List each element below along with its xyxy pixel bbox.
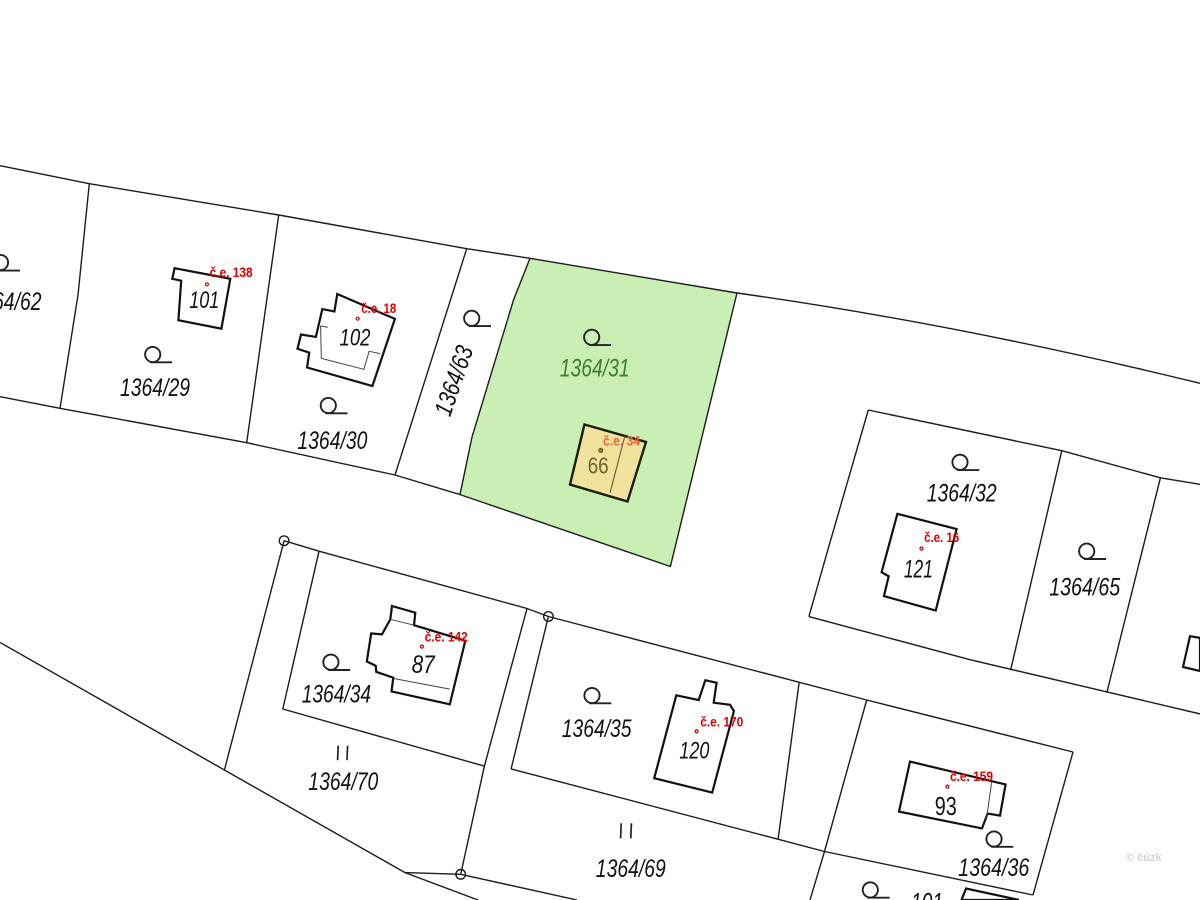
svg-text:č.e. 138: č.e. 138 (210, 265, 253, 280)
svg-text:č.e. 34: č.e. 34 (603, 434, 640, 449)
svg-text:1364/32: 1364/32 (927, 480, 997, 508)
svg-text:87: 87 (412, 651, 436, 679)
svg-text:1364/34: 1364/34 (302, 681, 371, 709)
svg-text:© čúzk: © čúzk (1126, 852, 1162, 864)
svg-text:č.e. 159: č.e. 159 (950, 769, 993, 784)
svg-text:č.e. 18: č.e. 18 (361, 301, 396, 316)
svg-text:1364/62: 1364/62 (0, 288, 42, 316)
svg-text:1364/65: 1364/65 (1049, 574, 1120, 602)
svg-text:101: 101 (189, 287, 219, 314)
svg-text:č.e. 170: č.e. 170 (700, 715, 743, 730)
svg-text:1364/70: 1364/70 (308, 768, 378, 796)
svg-text:1364/30: 1364/30 (297, 427, 367, 455)
svg-text:č.e. 16: č.e. 16 (924, 530, 959, 545)
svg-text:1364/35: 1364/35 (562, 715, 632, 743)
svg-text:1364/69: 1364/69 (596, 855, 666, 883)
svg-text:1364/31: 1364/31 (560, 355, 630, 383)
svg-text:101: 101 (911, 887, 943, 900)
svg-text:102: 102 (340, 324, 371, 351)
svg-text:66: 66 (588, 453, 609, 479)
svg-text:č.e. 142: č.e. 142 (425, 630, 468, 645)
svg-text:120: 120 (679, 738, 709, 765)
svg-text:1364/36: 1364/36 (958, 854, 1029, 882)
svg-text:1364/29: 1364/29 (120, 374, 190, 402)
svg-text:121: 121 (904, 556, 933, 584)
svg-text:93: 93 (935, 791, 957, 821)
